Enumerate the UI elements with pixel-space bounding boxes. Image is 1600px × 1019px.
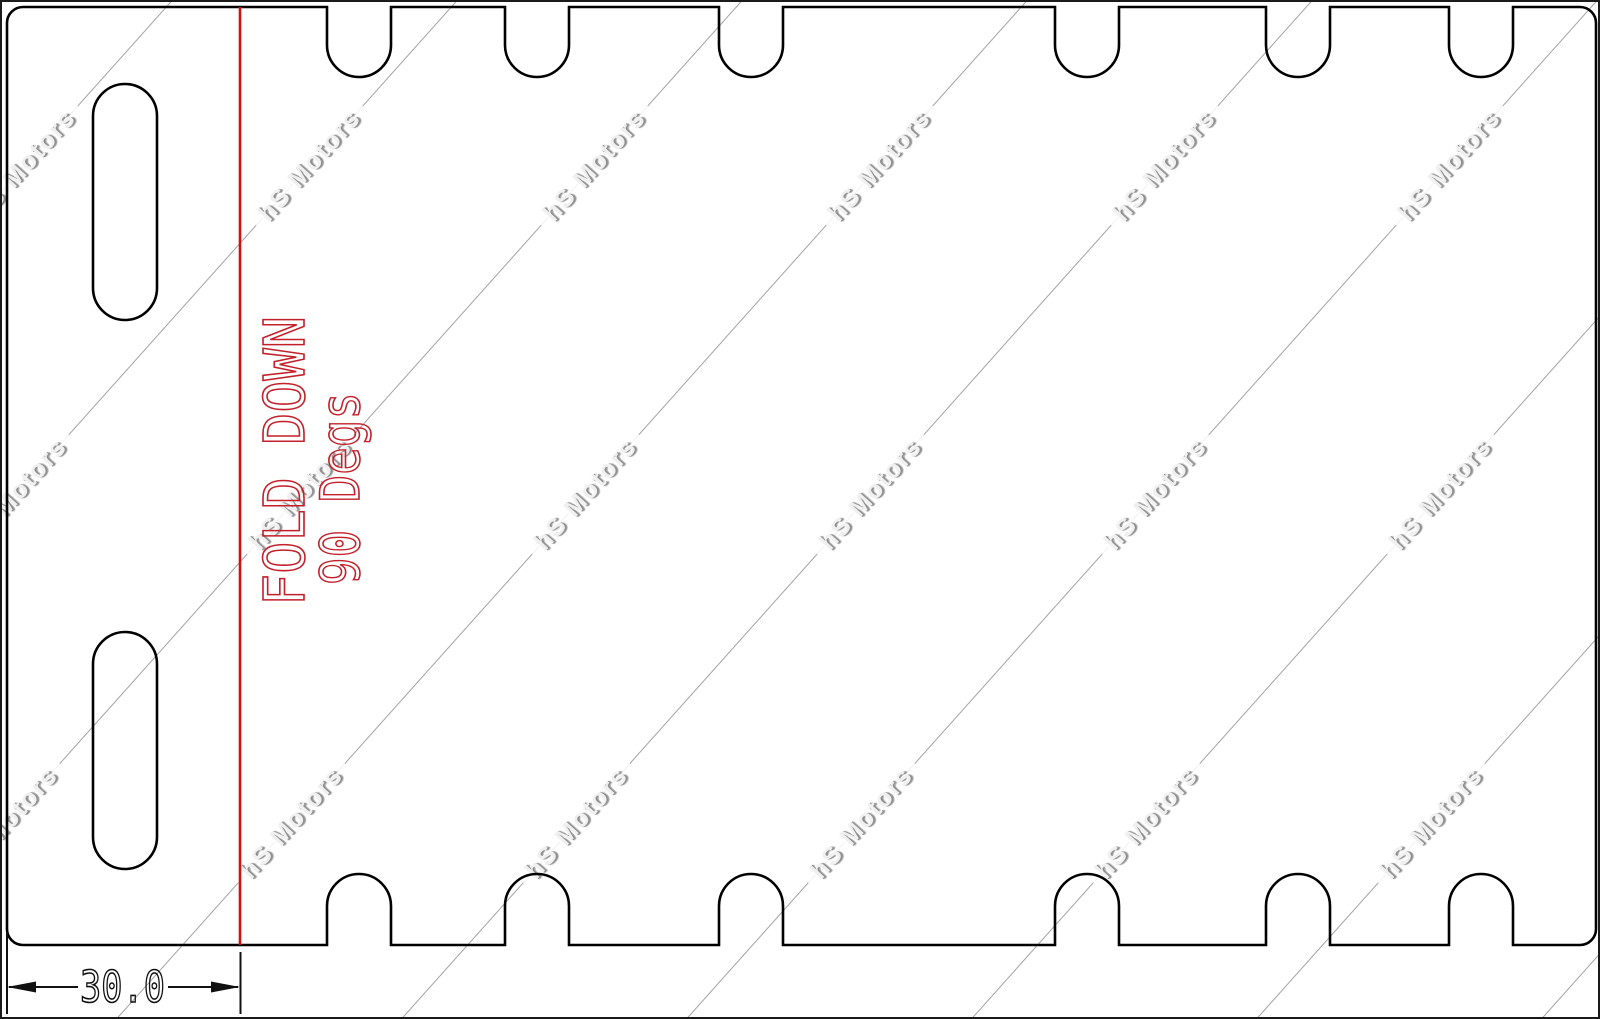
slot-hole-bottom [93,632,157,869]
slot-hole-top [93,84,157,320]
dimension-arrow-left [7,982,36,993]
sheet-outline [7,7,1596,945]
part-drawing: FOLD DOWN 90 Degs 30.0 [2,2,1600,1019]
dimension-arrow-right [211,982,240,993]
dimension-value: 30.0 [80,962,165,1013]
drawing-sheet: hS MotorshS MotorshS MotorshS MotorshS M… [0,0,1600,1019]
fold-note-line2: 90 Degs [309,392,372,585]
